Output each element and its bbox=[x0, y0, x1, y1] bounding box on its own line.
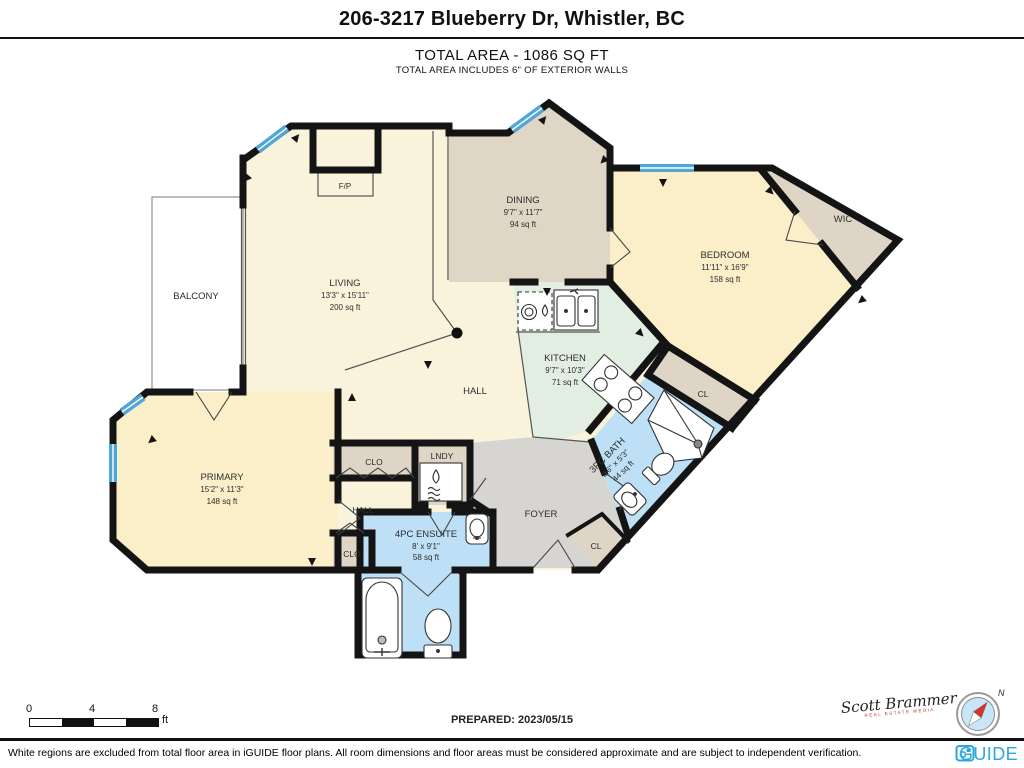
kitchen-sink-icon bbox=[554, 289, 598, 330]
ensuite-toilet-icon bbox=[424, 609, 452, 658]
living-label: LIVING bbox=[329, 278, 360, 289]
svg-text:58 sq ft: 58 sq ft bbox=[413, 553, 440, 562]
bedroom-label: BEDROOM bbox=[700, 250, 749, 261]
ensuite-sink-icon bbox=[466, 514, 488, 544]
iguide-logo-icon bbox=[955, 744, 975, 762]
svg-text:158 sq ft: 158 sq ft bbox=[710, 275, 741, 284]
svg-text:71 sq ft: 71 sq ft bbox=[552, 378, 579, 387]
compass-icon: N bbox=[952, 686, 1010, 738]
balcony-label: BALCONY bbox=[173, 291, 219, 302]
compass-north-label: N bbox=[998, 688, 1005, 698]
iguide-logo: iGUIDE bbox=[955, 744, 1018, 765]
svg-text:15'2" x 11'3": 15'2" x 11'3" bbox=[200, 485, 243, 494]
foyer-label: FOYER bbox=[525, 509, 558, 520]
hall-label: HALL bbox=[463, 386, 487, 397]
fireplace-label: F/P bbox=[339, 182, 351, 191]
kitchen-label: KITCHEN bbox=[544, 353, 586, 364]
svg-text:9'7" x 10'3": 9'7" x 10'3" bbox=[545, 366, 585, 375]
svg-text:8' x 9'1": 8' x 9'1" bbox=[412, 542, 440, 551]
svg-text:9'7" x 11'7": 9'7" x 11'7" bbox=[504, 208, 543, 217]
dishwasher-icon bbox=[518, 292, 552, 330]
svg-text:148 sq ft: 148 sq ft bbox=[207, 497, 238, 506]
foyer-closet-label: CL bbox=[591, 541, 602, 551]
bathtub-icon bbox=[362, 578, 402, 658]
svg-text:13'3" x 15'11": 13'3" x 15'11" bbox=[321, 291, 369, 300]
primary-label: PRIMARY bbox=[200, 472, 244, 483]
camera-point bbox=[452, 328, 463, 339]
washer-icon bbox=[420, 463, 462, 501]
bedroom-closet-label: CL bbox=[698, 389, 709, 399]
ensuite-label: 4PC ENSUITE bbox=[395, 529, 457, 540]
wic-label: WIC bbox=[834, 214, 853, 225]
closet-bottom-label: CLO bbox=[343, 549, 361, 559]
disclaimer-text: White regions are excluded from total fl… bbox=[8, 747, 861, 759]
svg-text:200 sq ft: 200 sq ft bbox=[330, 303, 361, 312]
closet-top-label: CLO bbox=[365, 457, 383, 467]
floor-plan-drawing: BALCONY F/P LIVING 13'3" x 15'11" 200 sq… bbox=[0, 0, 1024, 768]
dining-label: DINING bbox=[506, 195, 539, 206]
hall-lower-label: HALL bbox=[352, 505, 374, 515]
laundry-label: LNDY bbox=[431, 451, 454, 461]
svg-text:94 sq ft: 94 sq ft bbox=[510, 220, 537, 229]
floor-plan-page: 206-3217 Blueberry Dr, Whistler, BC TOTA… bbox=[0, 0, 1024, 768]
svg-text:11'11" x 16'9": 11'11" x 16'9" bbox=[701, 263, 748, 272]
footer-divider bbox=[0, 738, 1024, 741]
